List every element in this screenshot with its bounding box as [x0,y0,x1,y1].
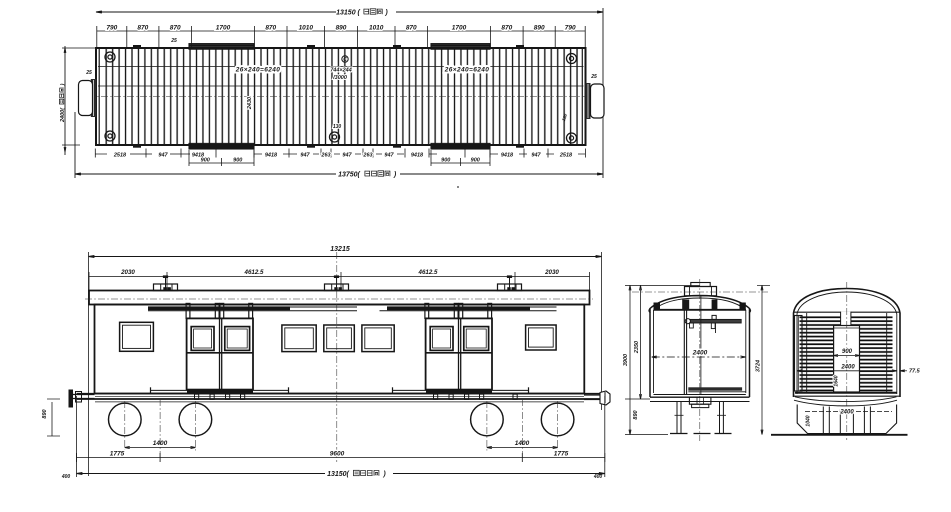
svg-text:1400: 1400 [515,440,530,447]
svg-text:13215: 13215 [330,246,350,253]
svg-text:1700: 1700 [216,25,231,32]
svg-text:400: 400 [61,474,71,480]
svg-text:2030: 2030 [544,269,559,276]
svg-text:947: 947 [384,153,394,159]
svg-text:790: 790 [106,25,117,32]
svg-text:3724: 3724 [756,360,762,372]
svg-text:900: 900 [233,158,242,164]
svg-text:1040: 1040 [806,415,812,426]
svg-text:890: 890 [42,409,48,418]
svg-text:1010: 1010 [369,25,384,32]
svg-text:870: 870 [501,25,512,32]
svg-text:2350: 2350 [634,341,640,354]
svg-text:77.5: 77.5 [909,369,921,375]
svg-text:947: 947 [300,153,310,159]
svg-text:26×240=6240: 26×240=6240 [444,67,490,74]
svg-text:1775: 1775 [110,451,125,458]
svg-text:890: 890 [534,25,545,32]
svg-text:870: 870 [406,25,417,32]
svg-text:130: 130 [333,124,342,130]
svg-text:744×244: 744×244 [330,68,352,74]
svg-text:2518: 2518 [113,153,127,159]
svg-text:/3000: /3000 [332,75,347,81]
svg-text:400: 400 [593,474,603,480]
svg-text:890: 890 [336,25,347,32]
svg-text:890: 890 [633,410,639,419]
svg-text:2400: 2400 [839,410,854,416]
svg-text:3900: 3900 [623,354,629,366]
svg-text:1640: 1640 [834,375,840,386]
svg-text:900: 900 [842,349,853,355]
svg-text:9418: 9418 [501,153,514,159]
svg-text:2518: 2518 [559,153,573,159]
svg-text:900: 900 [201,158,210,164]
svg-text:1010: 1010 [299,25,314,32]
svg-text:870: 870 [170,25,181,32]
svg-text:1775: 1775 [554,451,569,458]
svg-text:25: 25 [590,74,597,80]
svg-text:9418: 9418 [265,153,278,159]
svg-text:900: 900 [471,158,480,164]
svg-text:2400: 2400 [692,350,708,357]
svg-text:C: C [343,57,347,63]
svg-text:9418: 9418 [411,153,424,159]
svg-text:1700: 1700 [452,25,467,32]
svg-text:263: 263 [320,153,330,159]
svg-text:2430: 2430 [247,97,253,110]
svg-text:2400: 2400 [840,364,855,370]
svg-text:): ) [60,83,66,86]
svg-text:13150 (: 13150 ( [336,10,360,17]
svg-text:870: 870 [265,25,276,32]
svg-text:13150(: 13150( [327,471,349,478]
svg-text:2400(: 2400( [60,107,66,123]
svg-text:26×240=6240: 26×240=6240 [235,67,281,74]
svg-text:25: 25 [170,38,177,44]
svg-text:4612.5: 4612.5 [244,269,264,276]
svg-text:263: 263 [362,153,372,159]
svg-text:790: 790 [565,25,576,32]
svg-text:1400: 1400 [153,440,168,447]
svg-text:870: 870 [137,25,148,32]
svg-text:25: 25 [85,70,92,76]
svg-text:9600: 9600 [330,451,345,458]
svg-text:947: 947 [342,153,352,159]
svg-text:2030: 2030 [120,269,135,276]
svg-text:900: 900 [441,158,450,164]
svg-text:13750(: 13750( [338,172,360,179]
svg-text:947: 947 [531,153,541,159]
svg-text:4612.5: 4612.5 [418,269,438,276]
svg-text:947: 947 [158,153,168,159]
